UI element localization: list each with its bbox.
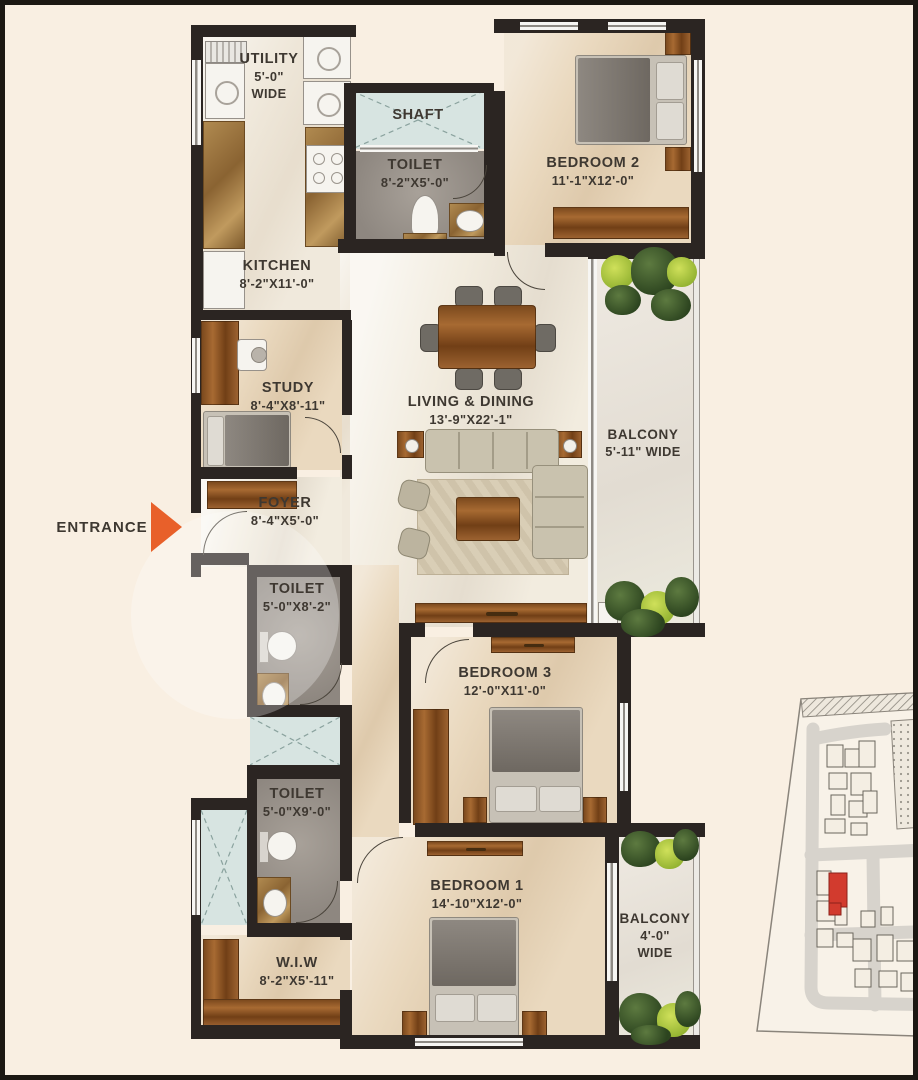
wall bbox=[399, 637, 411, 823]
wall bbox=[191, 467, 297, 479]
wall bbox=[415, 823, 705, 837]
chair-icon bbox=[534, 324, 556, 352]
window bbox=[607, 863, 617, 981]
pillow-icon bbox=[495, 786, 537, 812]
wall bbox=[344, 83, 494, 93]
washbasin-icon bbox=[456, 210, 484, 232]
wardrobe-icon bbox=[201, 321, 239, 405]
balcony-railing bbox=[693, 259, 700, 623]
vanity-icon bbox=[449, 203, 489, 237]
wall bbox=[473, 623, 705, 637]
burner-icon bbox=[313, 153, 325, 165]
handle bbox=[486, 612, 518, 616]
side-table-icon bbox=[397, 431, 424, 458]
nightstand-icon bbox=[402, 1011, 427, 1037]
pillow-icon bbox=[656, 62, 684, 100]
cushion-seam bbox=[458, 432, 460, 469]
pillow-icon bbox=[435, 994, 475, 1022]
cushion-seam bbox=[535, 496, 584, 498]
window bbox=[415, 1038, 523, 1046]
room-label-bedroom1: BEDROOM 1 14'-10"X12'-0" bbox=[430, 878, 523, 911]
room-label-wiw: W.I.W 8'-2"X5'-11" bbox=[260, 955, 335, 988]
room-name: STUDY bbox=[251, 380, 326, 396]
wall bbox=[342, 320, 352, 415]
room-name: FOYER bbox=[251, 495, 319, 511]
hall-floor bbox=[352, 565, 399, 837]
room-label-bedroom2: BEDROOM 2 11'-1"X12'-0" bbox=[546, 155, 639, 188]
room-label-shaft: SHAFT bbox=[392, 107, 443, 123]
shaft-cross-icon bbox=[250, 717, 340, 765]
hob-icon bbox=[306, 145, 349, 193]
double-bed-icon bbox=[575, 55, 687, 145]
room-name: BEDROOM 1 bbox=[430, 878, 523, 894]
room-label-toilet-mid: TOILET 5'-0"X8'-2" bbox=[263, 581, 331, 614]
room-name: TOILET bbox=[381, 157, 449, 173]
wall bbox=[494, 91, 505, 256]
chair-icon bbox=[494, 368, 522, 390]
shaft-left-floor bbox=[201, 810, 247, 925]
lamp-icon bbox=[405, 439, 419, 453]
wall bbox=[191, 925, 201, 1037]
wall bbox=[340, 565, 352, 665]
wall bbox=[247, 923, 350, 937]
oven-ring-icon bbox=[317, 93, 341, 117]
room-label-utility: UTILITY 5'-0" WIDE bbox=[240, 51, 299, 101]
coffee-table-icon bbox=[456, 497, 520, 541]
room-label-foyer: FOYER 8'-4"X5'-0" bbox=[251, 495, 319, 528]
wall bbox=[338, 239, 494, 253]
wall bbox=[399, 623, 425, 637]
room-label-balcony-bottom: BALCONY 4'-0" WIDE bbox=[620, 911, 691, 960]
washer-drum-icon bbox=[215, 81, 239, 105]
room-name: KITCHEN bbox=[240, 258, 315, 274]
oven-icon bbox=[303, 35, 351, 79]
lamp-icon bbox=[563, 439, 577, 453]
cushion-seam bbox=[535, 526, 584, 528]
cushion-seam bbox=[492, 432, 494, 469]
wall bbox=[344, 151, 356, 251]
window bbox=[608, 22, 666, 30]
room-name: BALCONY bbox=[605, 427, 680, 442]
entrance-arrow-icon bbox=[151, 502, 182, 552]
cushion-seam bbox=[526, 432, 528, 469]
room-name: TOILET bbox=[263, 786, 331, 802]
room-label-bedroom3: BEDROOM 3 12'-0"X11'-0" bbox=[458, 665, 551, 698]
pillow-icon bbox=[207, 416, 224, 466]
blanket bbox=[225, 415, 289, 466]
room-dim: 5'-0" bbox=[240, 69, 299, 84]
shaft-cross-icon bbox=[201, 810, 247, 925]
room-label-balcony-right: BALCONY 5'-11" WIDE bbox=[605, 427, 680, 459]
plant-icon bbox=[605, 285, 641, 315]
wall bbox=[191, 1025, 351, 1039]
corner-sofa-icon bbox=[532, 465, 588, 559]
room-dim: 5'-0"X9'-0" bbox=[263, 804, 331, 819]
room-dim: 12'-0"X11'-0" bbox=[458, 683, 551, 698]
wall bbox=[191, 310, 351, 320]
wall bbox=[340, 990, 352, 1037]
window bbox=[192, 60, 201, 145]
pillow-icon bbox=[656, 102, 684, 140]
room-label-study: STUDY 8'-4"X8'-11" bbox=[251, 380, 326, 413]
handle bbox=[466, 848, 486, 851]
pillow-icon bbox=[477, 994, 517, 1022]
chair-icon bbox=[455, 368, 483, 390]
burner-icon bbox=[331, 153, 343, 165]
window bbox=[192, 820, 200, 915]
wall bbox=[342, 455, 352, 479]
window bbox=[520, 22, 578, 30]
room-dim: 13'-9"X22'-1" bbox=[408, 412, 535, 427]
nightstand-icon bbox=[665, 147, 691, 171]
window bbox=[620, 703, 628, 791]
room-dim: 14'-10"X12'-0" bbox=[430, 896, 523, 911]
nightstand-icon bbox=[522, 1011, 547, 1037]
vanity-icon bbox=[257, 877, 291, 925]
side-table-icon bbox=[555, 431, 582, 458]
plant-icon bbox=[665, 577, 699, 617]
nightstand-icon bbox=[583, 797, 607, 823]
window bbox=[588, 259, 597, 623]
wc-icon bbox=[267, 831, 297, 861]
plant-icon bbox=[651, 289, 691, 321]
room-label-living-dining: LIVING & DINING 13'-9"X22'-1" bbox=[408, 394, 535, 427]
blanket bbox=[432, 920, 516, 986]
room-dim: WIDE bbox=[240, 86, 299, 101]
double-bed-icon bbox=[429, 917, 519, 1037]
desk-chair-icon bbox=[251, 347, 267, 363]
washbasin-icon bbox=[263, 889, 287, 917]
wardrobe-icon bbox=[203, 939, 239, 1001]
room-name: TOILET bbox=[263, 581, 331, 597]
plant-icon bbox=[621, 609, 665, 637]
oven-ring-icon bbox=[317, 47, 341, 71]
plant-icon bbox=[631, 1025, 671, 1045]
wall bbox=[344, 83, 356, 153]
wall bbox=[191, 25, 356, 37]
nightstand-icon bbox=[463, 797, 487, 823]
entrance-label: ENTRANCE bbox=[56, 519, 147, 536]
burner-icon bbox=[313, 172, 325, 184]
room-name: BALCONY bbox=[620, 911, 691, 926]
pillow-icon bbox=[539, 786, 581, 812]
wc-icon bbox=[411, 195, 439, 237]
wardrobe-icon bbox=[413, 709, 449, 825]
room-dim: 8'-2"X11'-0" bbox=[240, 276, 315, 291]
room-dim: 5'-0"X8'-2" bbox=[263, 599, 331, 614]
plant-icon bbox=[675, 991, 701, 1027]
room-name: UTILITY bbox=[240, 51, 299, 67]
room-name: BEDROOM 3 bbox=[458, 665, 551, 681]
window bbox=[192, 338, 200, 393]
room-dim: WIDE bbox=[620, 945, 691, 960]
window bbox=[360, 145, 478, 152]
single-bed-icon bbox=[203, 411, 291, 469]
tv-console-icon bbox=[415, 603, 587, 623]
room-dim: 5'-11" WIDE bbox=[605, 444, 680, 459]
room-name: LIVING & DINING bbox=[408, 394, 535, 410]
plant-icon bbox=[667, 257, 697, 287]
handle bbox=[524, 644, 544, 647]
nightstand-icon bbox=[665, 31, 691, 55]
room-name: BEDROOM 2 bbox=[546, 155, 639, 171]
site-plan-map bbox=[751, 687, 918, 1047]
dresser-icon bbox=[427, 841, 523, 856]
room-name: W.I.W bbox=[260, 955, 335, 971]
blanket bbox=[578, 58, 650, 142]
room-label-toilet-bottom: TOILET 5'-0"X9'-0" bbox=[263, 786, 331, 819]
window bbox=[694, 60, 702, 172]
wall bbox=[340, 923, 352, 940]
room-dim: 8'-2"X5'-11" bbox=[260, 973, 335, 988]
room-dim: 8'-4"X8'-11" bbox=[251, 398, 326, 413]
plant-icon bbox=[673, 829, 699, 861]
shaft-mid-floor bbox=[250, 717, 340, 765]
room-label-kitchen: KITCHEN 8'-2"X11'-0" bbox=[240, 258, 315, 291]
room-dim: 4'-0" bbox=[620, 928, 691, 943]
blanket bbox=[492, 710, 580, 772]
utility-counter bbox=[203, 121, 245, 249]
wardrobe-icon bbox=[553, 207, 689, 239]
room-label-toilet-top: TOILET 8'-2"X5'-0" bbox=[381, 157, 449, 190]
room-dim: 8'-4"X5'-0" bbox=[251, 513, 319, 528]
burner-icon bbox=[331, 172, 343, 184]
room-name: SHAFT bbox=[392, 107, 443, 123]
room-dim: 11'-1"X12'-0" bbox=[546, 173, 639, 188]
room-dim: 8'-2"X5'-0" bbox=[381, 175, 449, 190]
wall bbox=[340, 705, 352, 881]
dresser-icon bbox=[491, 637, 575, 653]
plant-icon bbox=[601, 255, 635, 289]
double-bed-icon bbox=[489, 707, 583, 823]
dining-table-icon bbox=[438, 305, 536, 369]
entrance-text: ENTRANCE bbox=[56, 519, 147, 536]
floor-plan: ENTRANCE UTILITY 5'-0" WIDE SHAFT TOILET… bbox=[0, 0, 918, 1080]
wardrobe-icon bbox=[203, 999, 341, 1027]
wall bbox=[191, 479, 201, 513]
wall bbox=[247, 765, 350, 779]
